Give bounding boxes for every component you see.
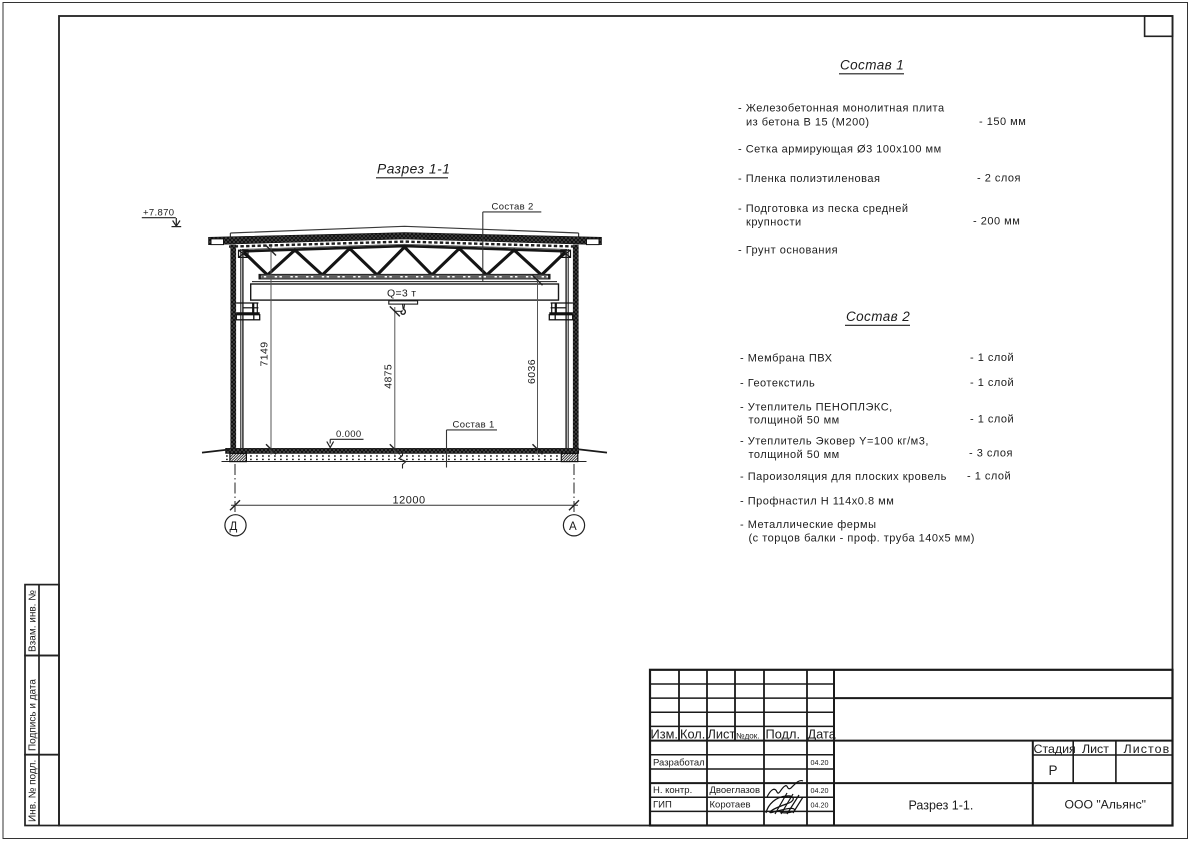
svg-text:Подпись и дата: Подпись и дата [28, 679, 39, 751]
svg-text:Лист: Лист [1082, 742, 1109, 756]
svg-text:Q=3 т: Q=3 т [387, 287, 416, 299]
svg-text:0.000: 0.000 [336, 429, 362, 440]
svg-text:Разрез 1-1.: Разрез 1-1. [909, 799, 974, 813]
svg-text:- Грунт основания: - Грунт основания [738, 245, 838, 257]
svg-text:толщиной 50 мм: толщиной 50 мм [749, 449, 840, 461]
svg-text:Дата: Дата [808, 727, 837, 742]
svg-text:Д: Д [230, 521, 238, 533]
svg-text:Коротаев: Коротаев [710, 800, 751, 811]
svg-text:Стадия: Стадия [1034, 742, 1076, 756]
svg-text:04.20: 04.20 [811, 786, 829, 795]
svg-text:Лист: Лист [708, 727, 736, 742]
svg-text:(с торцов балки - проф. труба: (с торцов балки - проф. труба 140х5 мм) [749, 533, 975, 545]
svg-text:04.20: 04.20 [811, 758, 829, 767]
svg-text:Листов: Листов [1124, 742, 1171, 756]
svg-text:- Профнастил Н 114х0.8 мм: - Профнастил Н 114х0.8 мм [740, 496, 894, 508]
svg-text:Состав 1: Состав 1 [453, 420, 495, 431]
svg-text:Инв. № подл.: Инв. № подл. [28, 760, 39, 822]
svg-text:Изм.: Изм. [651, 727, 678, 742]
svg-text:- 1 слой: - 1 слой [970, 377, 1014, 389]
svg-text:из бетона В 15 (М200): из бетона В 15 (М200) [746, 117, 869, 129]
svg-text:Состав 2: Состав 2 [492, 201, 534, 212]
svg-text:- Сетка армирующая Ø3 100х100: - Сетка армирующая Ø3 100х100 мм [738, 144, 942, 156]
svg-text:№док.: №док. [736, 732, 759, 741]
svg-text:Состав 1: Состав 1 [840, 58, 904, 73]
svg-text:Р: Р [1049, 763, 1058, 778]
svg-text:Разработал: Разработал [653, 758, 705, 769]
svg-text:Разрез 1-1: Разрез 1-1 [377, 162, 450, 177]
svg-text:- Пленка полиэтиленовая: - Пленка полиэтиленовая [738, 173, 880, 185]
svg-text:6036: 6036 [526, 359, 538, 384]
svg-text:толщиной 50 мм: толщиной 50 мм [749, 415, 840, 427]
svg-text:- Утеплитель Эковер Y=100 кг/м: - Утеплитель Эковер Y=100 кг/м3, [740, 436, 929, 448]
svg-text:Двоеглазов: Двоеглазов [710, 785, 761, 796]
svg-text:- Пароизоляция для плоских кро: - Пароизоляция для плоских кровель [740, 471, 947, 483]
svg-text:- 1 слой: - 1 слой [970, 352, 1014, 364]
svg-text:- Утеплитель ПЕНОПЛЭКС,: - Утеплитель ПЕНОПЛЭКС, [740, 402, 893, 414]
svg-text:Состав 2: Состав 2 [846, 309, 910, 324]
svg-text:- 1 слой: - 1 слой [967, 471, 1011, 483]
svg-text:ООО "Альянс": ООО "Альянс" [1065, 798, 1147, 812]
svg-text:ГИП: ГИП [653, 800, 672, 811]
svg-text:- 150 мм: - 150 мм [979, 116, 1026, 128]
svg-text:- Подготовка из песка средней: - Подготовка из песка средней [738, 203, 908, 215]
svg-text:- 200 мм: - 200 мм [973, 216, 1020, 228]
svg-text:Кол.: Кол. [680, 727, 705, 742]
svg-text:Н. контр.: Н. контр. [653, 785, 692, 796]
svg-text:- Железобетонная монолитная п: - Железобетонная монолитная плита [738, 103, 945, 115]
svg-text:крупности: крупности [746, 217, 802, 229]
svg-text:- Мембрана ПВХ: - Мембрана ПВХ [740, 353, 833, 365]
svg-text:7149: 7149 [259, 342, 271, 367]
svg-text:4875: 4875 [383, 364, 395, 389]
svg-text:- Металлические фермы: - Металлические фермы [740, 519, 877, 531]
svg-text:Взам. инв. №: Взам. инв. № [28, 590, 39, 652]
svg-text:- 3 слоя: - 3 слоя [969, 448, 1013, 460]
svg-text:Подл.: Подл. [766, 727, 801, 742]
svg-text:12000: 12000 [393, 494, 426, 506]
svg-text:А: А [569, 521, 577, 533]
svg-text:+7.870: +7.870 [143, 208, 174, 219]
svg-text:- 1 слой: - 1 слой [970, 414, 1014, 426]
svg-text:04.20: 04.20 [811, 801, 829, 810]
svg-text:- 2 слоя: - 2 слоя [977, 173, 1021, 185]
svg-text:- Геотекстиль: - Геотекстиль [740, 378, 815, 390]
